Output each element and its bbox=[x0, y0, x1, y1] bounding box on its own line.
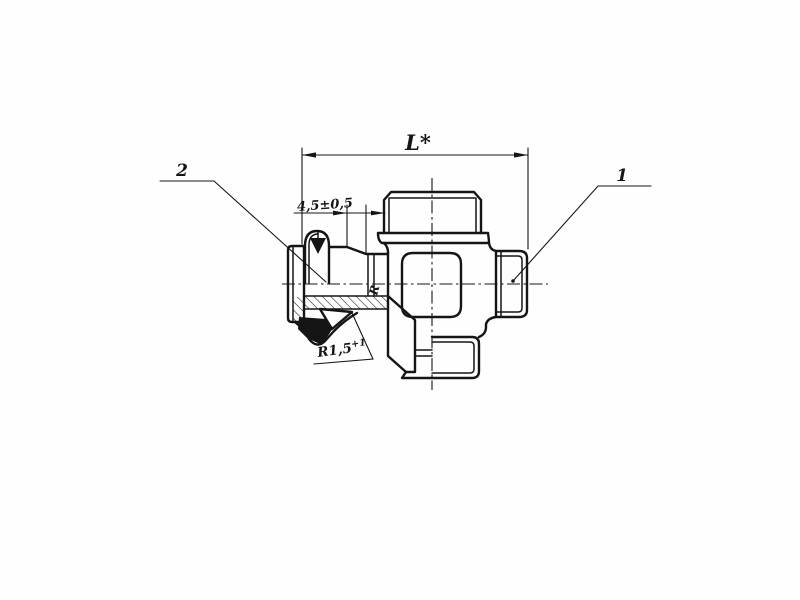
bottom-boss-thread-lines bbox=[432, 342, 474, 373]
dim-offset: 4,5±0,5 bbox=[294, 196, 385, 253]
thread-hole-lines bbox=[415, 350, 432, 356]
body-wall-section bbox=[388, 296, 415, 372]
length-dimension-label: L* bbox=[404, 130, 431, 155]
body-fillet-top-right bbox=[489, 243, 496, 251]
dim-length: L* bbox=[302, 130, 528, 249]
body bbox=[384, 243, 496, 337]
body-fillet-top-left bbox=[384, 243, 388, 252]
radius-tolerance: +1 bbox=[351, 337, 367, 350]
leader-part-2: 2 bbox=[160, 161, 326, 282]
dim-length-arrow-left bbox=[302, 152, 316, 157]
top-boss-flange bbox=[378, 233, 489, 243]
dim-offset-extension-lines bbox=[347, 205, 366, 253]
technical-drawing: L* 4,5±0,5 2 1 R1,5+1 R bbox=[0, 0, 800, 600]
drawing-sheet: L* 4,5±0,5 2 1 R1,5+1 R bbox=[0, 0, 800, 600]
offset-dimension-label: 4,5±0,5 bbox=[296, 196, 353, 215]
nipple-wall-hatch bbox=[304, 296, 388, 309]
leader-1-line bbox=[513, 186, 651, 281]
part-ref-2-label: 2 bbox=[175, 161, 188, 181]
bottom-boss bbox=[432, 337, 479, 378]
top-boss bbox=[378, 192, 489, 243]
part-ref-1-label: 1 bbox=[616, 166, 628, 186]
dim-length-arrow-right bbox=[514, 152, 528, 157]
leader-2-line bbox=[160, 181, 326, 282]
section-bottom-face bbox=[402, 372, 432, 378]
body-fillet-bottom-right bbox=[479, 317, 496, 337]
check-ball bbox=[310, 238, 326, 254]
nipple-top-profile bbox=[329, 247, 388, 254]
leader-part-1: 1 bbox=[511, 166, 651, 283]
leader-1-dot bbox=[511, 279, 515, 283]
